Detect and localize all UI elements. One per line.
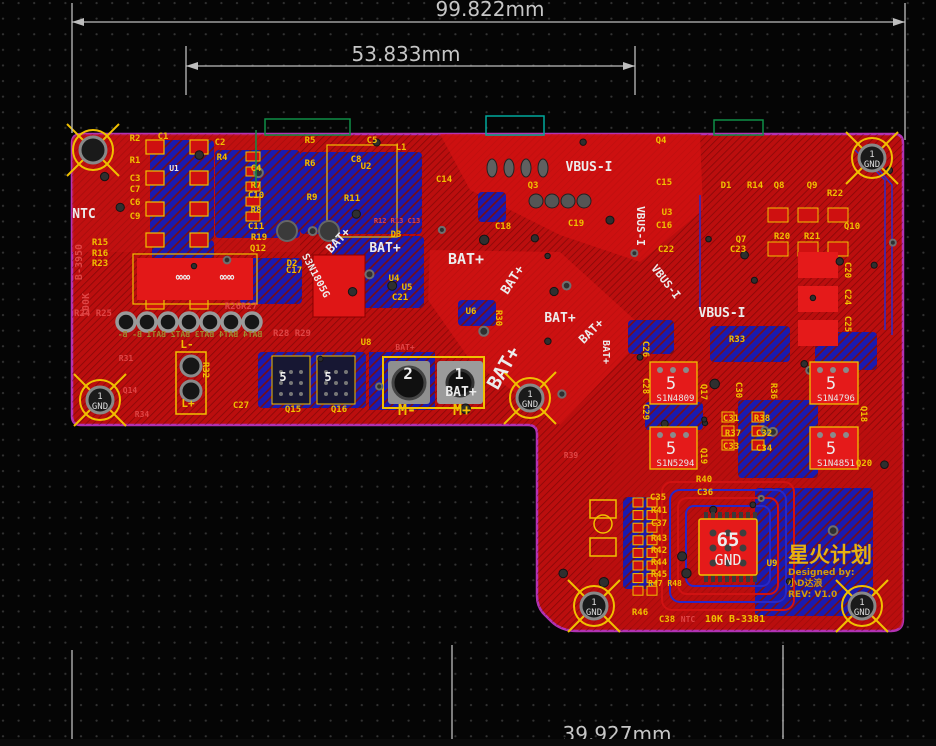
silk-label[interactable]: R47 R48 bbox=[648, 579, 682, 588]
silk-label[interactable]: C17 bbox=[286, 266, 302, 276]
chip-Q20[interactable]: 5S1N4851 bbox=[810, 427, 858, 469]
silk-label[interactable]: U8 bbox=[361, 338, 372, 348]
chip-Q18[interactable]: 5S1N4796 bbox=[810, 362, 858, 404]
silk-label[interactable]: R20 bbox=[774, 232, 790, 242]
silk-label[interactable]: VBUS-I bbox=[699, 306, 746, 321]
silk-label[interactable]: C1 bbox=[158, 132, 169, 142]
chip-part-number: S1N4851 bbox=[817, 459, 855, 469]
via bbox=[224, 257, 231, 264]
chip-Q19[interactable]: 5S1N5294 bbox=[650, 427, 697, 469]
silk-label[interactable]: R9 bbox=[307, 193, 318, 203]
hole-net-label: GND bbox=[522, 400, 538, 410]
silk-label[interactable]: Q10 bbox=[844, 222, 860, 232]
via bbox=[559, 569, 568, 578]
pcb-canvas[interactable]: 5S1N48095S1N47965S1N52945S1N485165GND 1G… bbox=[0, 0, 936, 746]
silk-label[interactable]: C23 bbox=[730, 245, 746, 255]
silk-label[interactable]: C38 bbox=[659, 615, 675, 625]
silk-label[interactable]: Q15 bbox=[285, 405, 301, 415]
silk-label[interactable]: VBUS-I bbox=[566, 160, 613, 175]
silk-label[interactable]: U5 bbox=[402, 283, 413, 293]
via bbox=[580, 139, 586, 145]
chip-u9-qfn[interactable]: 65GND bbox=[699, 512, 757, 582]
silk-label[interactable]: R14 bbox=[747, 181, 764, 191]
silk-label[interactable]: Q14 bbox=[123, 386, 138, 395]
via bbox=[682, 569, 691, 578]
silk-label[interactable]: R38 bbox=[754, 414, 770, 424]
via bbox=[479, 235, 488, 244]
watermark-designed-by: Designed by: bbox=[788, 568, 854, 578]
via bbox=[479, 327, 488, 336]
silk-label[interactable]: C32 bbox=[756, 429, 772, 439]
via bbox=[558, 390, 565, 397]
bottom-copper-region bbox=[710, 326, 790, 362]
silk-label[interactable]: C16 bbox=[656, 221, 672, 231]
silk-label[interactable]: R28 R29 bbox=[273, 329, 311, 339]
silk-label[interactable]: C11 bbox=[248, 222, 264, 232]
silk-label[interactable]: C35 bbox=[650, 493, 666, 503]
silk-label[interactable]: R26R27 bbox=[225, 302, 258, 312]
silk-label[interactable]: BAT+ bbox=[600, 340, 611, 364]
silk-label[interactable]: C21 bbox=[392, 293, 408, 303]
silk-label[interactable]: R36 bbox=[768, 383, 778, 399]
via bbox=[661, 420, 668, 427]
silk-label[interactable]: BAT+ bbox=[445, 385, 476, 400]
via bbox=[348, 287, 356, 295]
via bbox=[191, 263, 196, 268]
silk-label[interactable]: M- bbox=[398, 401, 416, 419]
chip-part-number: S1N4796 bbox=[817, 394, 855, 404]
via bbox=[439, 227, 445, 233]
silk-label[interactable]: C34 bbox=[756, 444, 773, 454]
silk-label[interactable]: Q19 bbox=[698, 448, 708, 464]
chip-part-number: S1N4809 bbox=[657, 394, 695, 404]
silk-label[interactable]: R22 bbox=[827, 189, 843, 199]
via bbox=[376, 383, 382, 389]
chip-marking: 5 bbox=[826, 374, 836, 394]
via bbox=[890, 240, 896, 246]
via bbox=[563, 282, 571, 290]
via bbox=[750, 502, 756, 508]
silk-label[interactable]: C36 bbox=[697, 488, 713, 498]
silk-label[interactable]: R15 bbox=[92, 238, 108, 248]
silk-label[interactable]: C22 bbox=[658, 245, 674, 255]
chip-marking: 5 bbox=[826, 439, 836, 459]
hole-pin-number: 1 bbox=[591, 598, 596, 608]
silk-label[interactable]: Q3 bbox=[528, 181, 539, 191]
silk-label[interactable]: 10K B-3381 bbox=[705, 614, 765, 625]
silk-label[interactable]: 1 bbox=[454, 365, 463, 383]
silk-label[interactable]: C30 bbox=[733, 382, 743, 398]
chip-part-number: S1N5294 bbox=[657, 459, 695, 469]
silk-label[interactable]: C31 bbox=[723, 414, 739, 424]
silk-label[interactable]: U9 bbox=[767, 559, 778, 569]
dimension-label-middle[interactable]: 53.833mm bbox=[352, 42, 461, 66]
silk-label[interactable]: Q18 bbox=[858, 406, 868, 422]
via bbox=[309, 227, 317, 235]
chip-Q17[interactable]: 5S1N4809 bbox=[650, 362, 697, 404]
silk-label[interactable]: R12 R13 C13 bbox=[374, 217, 420, 225]
via bbox=[545, 338, 551, 344]
silk-label[interactable]: L1 bbox=[396, 143, 407, 153]
silk-label[interactable]: NTC bbox=[72, 207, 95, 222]
hole-net-label: GND bbox=[854, 608, 870, 618]
silk-label[interactable]: M+ bbox=[453, 401, 471, 419]
via bbox=[545, 253, 550, 258]
silk-label[interactable]: R4 bbox=[217, 153, 228, 163]
silk-label[interactable]: C26 bbox=[640, 341, 650, 357]
silk-label[interactable]: R30 bbox=[493, 310, 503, 326]
bottom-copper-region bbox=[150, 140, 214, 240]
silk-label[interactable]: R5 bbox=[305, 136, 316, 146]
watermark-author: 小D达浪 bbox=[787, 577, 822, 589]
silk-label[interactable]: C15 bbox=[656, 178, 672, 188]
silk-label[interactable]: C18 bbox=[495, 222, 511, 232]
via bbox=[531, 235, 538, 242]
via bbox=[550, 287, 558, 295]
silk-label[interactable]: C33 bbox=[723, 442, 739, 452]
silk-label[interactable]: R1 bbox=[130, 156, 141, 166]
silk-label[interactable]: L- bbox=[180, 338, 193, 351]
hole-pin-number: 1 bbox=[859, 598, 864, 608]
silk-label[interactable]: C5 bbox=[367, 136, 378, 146]
bottom-copper-region bbox=[478, 192, 506, 222]
chip-net-label: GND bbox=[714, 551, 741, 569]
silk-label[interactable]: R23 bbox=[92, 259, 108, 269]
via bbox=[829, 526, 838, 535]
silk-label[interactable]: BAT+ bbox=[448, 250, 484, 268]
silk-label[interactable]: C37 bbox=[651, 519, 667, 529]
via bbox=[751, 277, 757, 283]
via bbox=[116, 203, 124, 211]
via bbox=[810, 295, 815, 300]
hole-net-label: GND bbox=[864, 160, 880, 170]
via bbox=[365, 270, 373, 278]
silk-label[interactable]: Q9 bbox=[807, 181, 818, 191]
silk-label[interactable]: R46 bbox=[632, 608, 648, 618]
silk-label[interactable]: Q20 bbox=[856, 459, 872, 469]
silk-label[interactable]: R8 bbox=[251, 206, 262, 216]
silk-label[interactable]: C14 bbox=[436, 175, 453, 185]
silk-label[interactable]: L+ bbox=[181, 397, 195, 410]
silk-label[interactable]: C28 bbox=[640, 378, 650, 394]
silk-label[interactable]: BAT4 BAT4 BAT3 BAT2 BAT1 B- B- bbox=[118, 330, 263, 339]
via bbox=[318, 356, 323, 361]
silk-label[interactable]: R21 bbox=[804, 232, 820, 242]
silk-label[interactable]: VBUS-I bbox=[634, 206, 647, 246]
silk-label[interactable]: U4 bbox=[389, 274, 400, 284]
watermark-title: 星火计划 bbox=[788, 543, 872, 567]
silk-label[interactable]: C19 bbox=[568, 219, 584, 229]
silk-label[interactable]: R6 bbox=[305, 159, 316, 169]
silk-label[interactable]: C2 bbox=[215, 138, 226, 148]
chip-marking: 5 bbox=[666, 374, 676, 394]
via bbox=[702, 417, 707, 422]
silk-label[interactable]: 5 bbox=[324, 370, 331, 384]
silk-label[interactable]: D1 bbox=[721, 181, 732, 191]
silk-label[interactable]: C29 bbox=[640, 404, 650, 420]
silk-label[interactable]: R2 bbox=[130, 134, 141, 144]
silk-label[interactable]: R41 bbox=[651, 506, 667, 516]
silk-label[interactable]: R34 bbox=[135, 410, 150, 419]
hole-net-label: GND bbox=[586, 608, 602, 618]
silk-label[interactable]: R42 bbox=[651, 546, 667, 556]
bottom-copper-region bbox=[458, 300, 496, 326]
bottom-copper-region bbox=[738, 400, 818, 478]
chip-marking: 65 bbox=[717, 529, 740, 551]
silk-label[interactable]: R44 bbox=[651, 558, 668, 568]
silk-label[interactable]: Q8 bbox=[774, 181, 785, 191]
silk-label[interactable]: ∞∞ bbox=[176, 270, 191, 284]
via bbox=[871, 262, 877, 268]
silk-label[interactable]: NTC bbox=[681, 615, 696, 624]
via bbox=[678, 552, 687, 561]
silk-label[interactable]: Q16 bbox=[331, 405, 347, 415]
silk-label[interactable]: C6 bbox=[130, 198, 141, 208]
via bbox=[352, 210, 360, 218]
via bbox=[706, 236, 712, 242]
silk-label[interactable]: 2 bbox=[403, 364, 413, 383]
silk-label[interactable]: R31 bbox=[119, 354, 134, 363]
hole-pin-number: 1 bbox=[527, 390, 532, 400]
silk-label[interactable]: C24 bbox=[842, 289, 852, 306]
silk-label[interactable]: R33 bbox=[729, 335, 745, 345]
via bbox=[631, 250, 637, 256]
silk-label[interactable]: BAT+ bbox=[544, 311, 575, 326]
silk-label[interactable]: C4 bbox=[251, 164, 262, 174]
silk-label[interactable]: C27 bbox=[233, 401, 249, 411]
hole-pin-number: 1 bbox=[97, 392, 102, 402]
silk-label[interactable]: B-3950 bbox=[74, 244, 85, 280]
hole-net-label: GND bbox=[92, 402, 108, 412]
bottom-copper-region bbox=[628, 320, 674, 354]
via bbox=[100, 172, 108, 180]
silk-label[interactable]: BAT+ bbox=[395, 343, 414, 352]
silk-label[interactable]: C20 bbox=[842, 262, 852, 278]
via bbox=[801, 361, 808, 368]
silk-label[interactable]: R7 bbox=[251, 181, 262, 191]
silk-label[interactable]: R32 bbox=[200, 362, 210, 378]
via bbox=[606, 216, 614, 224]
silk-label[interactable]: U3 bbox=[662, 208, 673, 218]
silk-label[interactable]: R43 bbox=[651, 534, 667, 544]
silk-label[interactable]: R16 bbox=[92, 249, 108, 259]
silk-label[interactable]: R11 bbox=[344, 194, 360, 204]
silk-label[interactable]: C7 bbox=[130, 185, 141, 195]
silk-label[interactable]: Q4 bbox=[656, 136, 667, 146]
via bbox=[881, 461, 889, 469]
silk-label[interactable]: U1 bbox=[169, 164, 179, 173]
chip-marking: 5 bbox=[666, 439, 676, 459]
canvas-bottom-strip bbox=[0, 739, 936, 746]
silk-label[interactable]: C25 bbox=[842, 316, 852, 332]
dimension-label-top[interactable]: 99.822mm bbox=[436, 0, 545, 21]
silk-label[interactable]: R37 bbox=[725, 429, 741, 439]
silk-label[interactable]: C3 bbox=[130, 174, 141, 184]
silk-label[interactable]: D3 bbox=[391, 230, 402, 240]
silk-label[interactable]: U6 bbox=[466, 307, 477, 317]
silk-label[interactable]: 5 bbox=[279, 370, 286, 384]
silk-label[interactable]: R40 bbox=[696, 475, 712, 485]
silk-label[interactable]: C10 bbox=[248, 191, 264, 201]
silk-label[interactable]: Q12 bbox=[250, 244, 266, 254]
silk-label[interactable]: U2 bbox=[361, 162, 372, 172]
silk-label[interactable]: Q17 bbox=[698, 384, 708, 400]
via bbox=[195, 151, 204, 160]
via bbox=[599, 578, 609, 588]
silk-label[interactable]: R24 R25 bbox=[74, 309, 112, 319]
hole-pin-number: 1 bbox=[869, 150, 874, 160]
silk-label[interactable]: Q7 bbox=[736, 235, 747, 245]
editor-viewport[interactable]: 5S1N48095S1N47965S1N52945S1N485165GND 1G… bbox=[0, 0, 936, 746]
watermark-revision: REV: V1.0 bbox=[788, 590, 837, 600]
silk-label[interactable]: C9 bbox=[130, 212, 141, 222]
silk-label[interactable]: R39 bbox=[564, 451, 579, 460]
via bbox=[759, 496, 764, 501]
silk-label[interactable]: ∞∞ bbox=[220, 270, 235, 284]
via bbox=[710, 379, 720, 389]
silk-label[interactable]: BAT+ bbox=[369, 241, 400, 256]
bottom-copper-region bbox=[645, 402, 703, 430]
silk-label[interactable]: R19 bbox=[251, 233, 267, 243]
